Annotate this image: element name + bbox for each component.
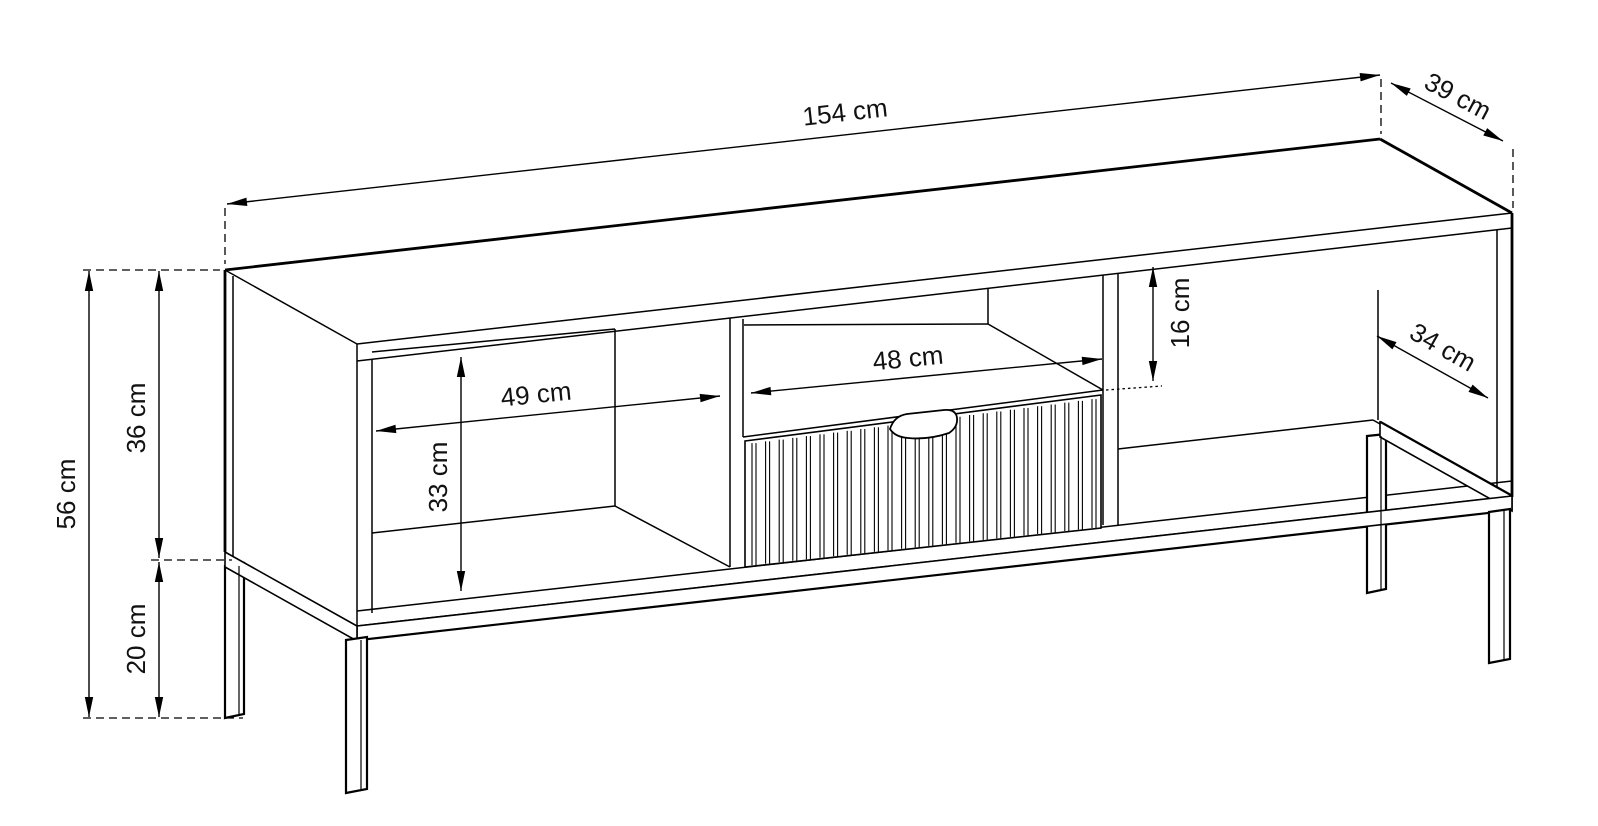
diagram-page: 154 cm39 cm56 cm36 cm20 cm49 cm33 cm48 c… xyxy=(0,0,1598,826)
dimension-label-overall-depth: 39 cm xyxy=(1420,66,1497,126)
dimension-label-niche-height: 16 cm xyxy=(1165,278,1195,349)
dimension-label-body-height: 36 cm xyxy=(121,383,151,454)
dimension-label-left-compartment-height: 33 cm xyxy=(423,442,453,513)
furniture-dimension-diagram: 154 cm39 cm56 cm36 cm20 cm49 cm33 cm48 c… xyxy=(0,0,1598,826)
dimension-label-overall-height: 56 cm xyxy=(51,459,81,530)
dimension-label-leg-height: 20 cm xyxy=(121,604,151,675)
dimension-label-left-compartment-width: 49 cm xyxy=(499,375,572,412)
dimension-label-right-compartment-depth: 34 cm xyxy=(1405,317,1481,378)
dimension-label-niche-width: 48 cm xyxy=(871,340,944,377)
dimension-label-overall-width: 154 cm xyxy=(801,92,889,131)
